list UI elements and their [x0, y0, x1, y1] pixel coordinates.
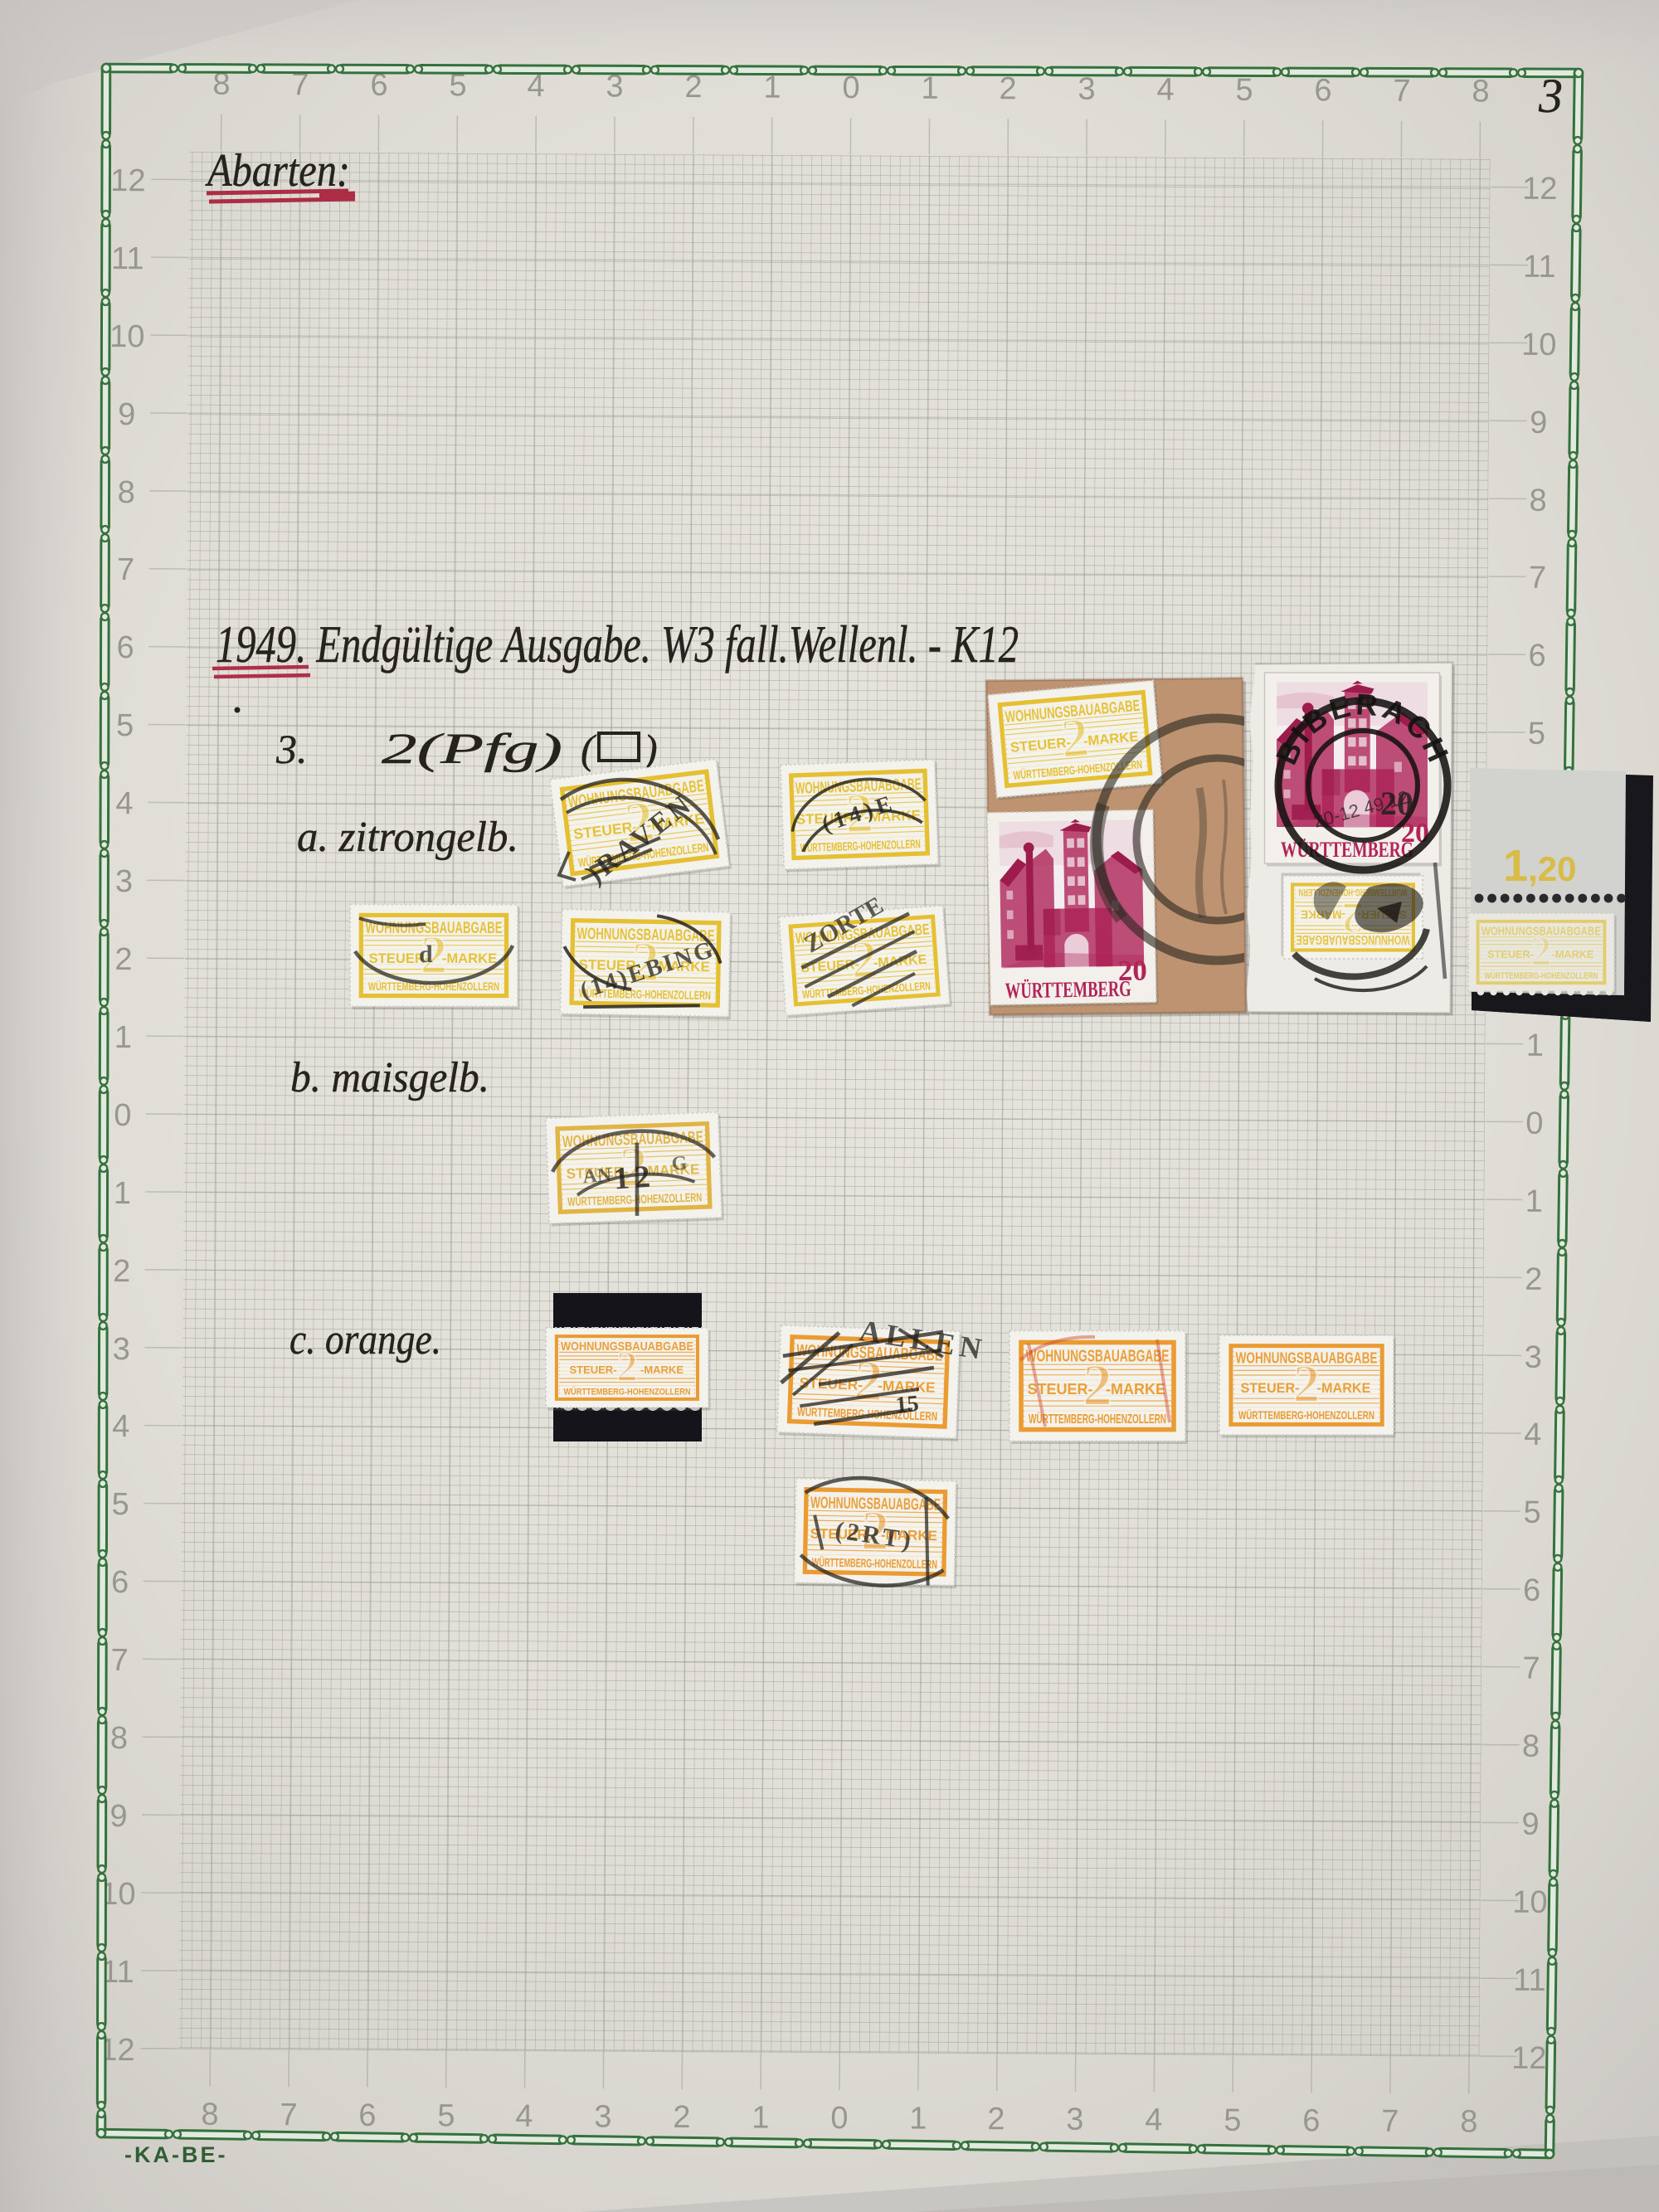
- svg-text:5: 5: [1224, 2103, 1241, 2138]
- svg-text:6: 6: [116, 630, 134, 665]
- svg-text:2(Pfg): 2(Pfg): [382, 726, 562, 773]
- svg-text:G: G: [671, 1152, 688, 1174]
- svg-text:7: 7: [117, 552, 134, 587]
- svg-text:0: 0: [830, 2101, 848, 2136]
- svg-text:10: 10: [1521, 328, 1557, 362]
- svg-text:7: 7: [1393, 74, 1410, 109]
- svg-text:1: 1: [921, 71, 938, 106]
- svg-text:5: 5: [116, 708, 134, 743]
- svg-text:-MARKE: -MARKE: [640, 1364, 684, 1376]
- svg-text:-MARKE: -MARKE: [442, 950, 497, 966]
- svg-text:2: 2: [1082, 1352, 1112, 1418]
- svg-text:2: 2: [1530, 929, 1552, 975]
- svg-text:12: 12: [612, 1159, 656, 1196]
- svg-text:Abarten:: Abarten:: [205, 145, 350, 197]
- svg-text:2: 2: [113, 1254, 130, 1289]
- svg-text:1: 1: [909, 2102, 927, 2137]
- svg-text:5: 5: [112, 1487, 129, 1522]
- svg-text:-MARKE: -MARKE: [1552, 949, 1594, 960]
- svg-text:): ): [641, 726, 658, 772]
- svg-text:2: 2: [999, 71, 1016, 106]
- svg-text:6: 6: [1523, 1573, 1540, 1608]
- svg-text:WÜRTTEMBERG-HOHENZOLLERN: WÜRTTEMBERG-HOHENZOLLERN: [1029, 1412, 1166, 1427]
- svg-text:5: 5: [1235, 73, 1253, 108]
- svg-text:AN: AN: [582, 1164, 613, 1188]
- svg-text:10: 10: [109, 319, 145, 354]
- svg-text:4: 4: [1524, 1417, 1541, 1452]
- svg-text:9: 9: [118, 397, 135, 432]
- svg-text:2: 2: [987, 2102, 1005, 2137]
- svg-text:0: 0: [1525, 1106, 1543, 1141]
- svg-text:3: 3: [1066, 2103, 1083, 2137]
- svg-text:3: 3: [594, 2099, 611, 2134]
- svg-text:d: d: [419, 941, 433, 968]
- svg-text:3: 3: [113, 1332, 130, 1367]
- svg-text:6: 6: [111, 1565, 129, 1600]
- svg-text:8: 8: [1522, 1729, 1540, 1764]
- svg-text:15: 15: [894, 1391, 920, 1418]
- svg-text:WÜRTTEMBERG: WÜRTTEMBERG: [1005, 976, 1131, 1004]
- svg-text:-MARKE: -MARKE: [1317, 1381, 1371, 1396]
- svg-text:3: 3: [1538, 69, 1563, 123]
- svg-text:7: 7: [1529, 561, 1546, 596]
- svg-text:1949. Endgültige Ausgabe. W3: 1949. Endgültige Ausgabe. W3 fall.Wellen…: [216, 615, 1019, 673]
- svg-text:5: 5: [1528, 717, 1545, 751]
- svg-text:6: 6: [1302, 2103, 1320, 2138]
- svg-text:1: 1: [114, 1176, 131, 1211]
- svg-text:2: 2: [616, 1344, 638, 1391]
- svg-text:7: 7: [1522, 1651, 1540, 1686]
- svg-text:12: 12: [110, 163, 146, 198]
- svg-text:10: 10: [1512, 1885, 1548, 1920]
- svg-text:8: 8: [1460, 2104, 1477, 2139]
- svg-text:7: 7: [280, 2098, 297, 2132]
- svg-text:6: 6: [358, 2098, 376, 2133]
- svg-text:4: 4: [115, 786, 133, 821]
- svg-text:6: 6: [1528, 639, 1545, 673]
- svg-text:3: 3: [1525, 1340, 1542, 1375]
- svg-text:8: 8: [201, 2098, 218, 2132]
- svg-text:4: 4: [1145, 2103, 1162, 2137]
- svg-text:8: 8: [1530, 484, 1547, 518]
- svg-text:2: 2: [673, 2100, 690, 2135]
- svg-text:8: 8: [1472, 74, 1489, 109]
- svg-text:3: 3: [115, 864, 133, 899]
- svg-text:11: 11: [1513, 1963, 1546, 1998]
- svg-text:2: 2: [114, 942, 132, 977]
- svg-text:c. orange.: c. orange.: [289, 1316, 441, 1364]
- svg-text:1: 1: [1525, 1184, 1543, 1219]
- svg-text:STEUER-: STEUER-: [1487, 949, 1534, 960]
- svg-text:0: 0: [842, 70, 859, 105]
- svg-text:5: 5: [437, 2098, 455, 2133]
- svg-text:1: 1: [752, 2100, 769, 2135]
- svg-text:WÜRTTEMBERG-HOHENZOLLERN: WÜRTTEMBERG-HOHENZOLLERN: [1485, 970, 1598, 981]
- svg-text:7: 7: [1381, 2104, 1399, 2139]
- svg-text:4: 4: [515, 2099, 533, 2134]
- svg-text:WÜRTTEMBERG-HOHENZOLLERN: WÜRTTEMBERG-HOHENZOLLERN: [564, 1387, 691, 1398]
- svg-text:12: 12: [1511, 2041, 1547, 2076]
- svg-text:4: 4: [1156, 72, 1174, 107]
- svg-text:11: 11: [111, 241, 144, 276]
- svg-text:1: 1: [114, 1020, 132, 1055]
- svg-text:-MARKE: -MARKE: [1106, 1381, 1165, 1398]
- svg-text:9: 9: [1530, 406, 1547, 440]
- svg-text:-KA-BE-: -KA-BE-: [124, 2142, 227, 2167]
- svg-text:6: 6: [1314, 73, 1331, 108]
- svg-text:8: 8: [118, 475, 135, 510]
- svg-text:8: 8: [110, 1721, 128, 1756]
- svg-text:a. zitrongelb.: a. zitrongelb.: [297, 814, 518, 861]
- svg-text:2: 2: [1525, 1262, 1542, 1297]
- svg-text:1: 1: [1526, 1028, 1544, 1063]
- svg-text:4: 4: [112, 1409, 129, 1444]
- svg-text:WÜRTTEMBERG-HOHENZOLLERN: WÜRTTEMBERG-HOHENZOLLERN: [812, 1555, 937, 1572]
- svg-text:2: 2: [1058, 707, 1092, 771]
- svg-text:STEUER-: STEUER-: [569, 1364, 616, 1376]
- svg-text:0: 0: [114, 1098, 131, 1133]
- svg-text:5: 5: [1523, 1495, 1540, 1530]
- svg-text:b. maisgelb.: b. maisgelb.: [290, 1054, 489, 1101]
- svg-text:2: 2: [1293, 1354, 1321, 1414]
- svg-text:9: 9: [109, 1799, 127, 1834]
- svg-text:STEUER-: STEUER-: [1240, 1381, 1299, 1396]
- svg-text:9: 9: [1521, 1807, 1539, 1842]
- svg-text:11: 11: [1523, 250, 1556, 284]
- svg-text:3.: 3.: [275, 726, 308, 772]
- svg-text:WÜRTTEMBERG-HOHENZOLLERN: WÜRTTEMBERG-HOHENZOLLERN: [1238, 1408, 1374, 1422]
- svg-text:3: 3: [1078, 72, 1095, 107]
- svg-text:7: 7: [110, 1643, 128, 1678]
- svg-text:12: 12: [1522, 172, 1558, 207]
